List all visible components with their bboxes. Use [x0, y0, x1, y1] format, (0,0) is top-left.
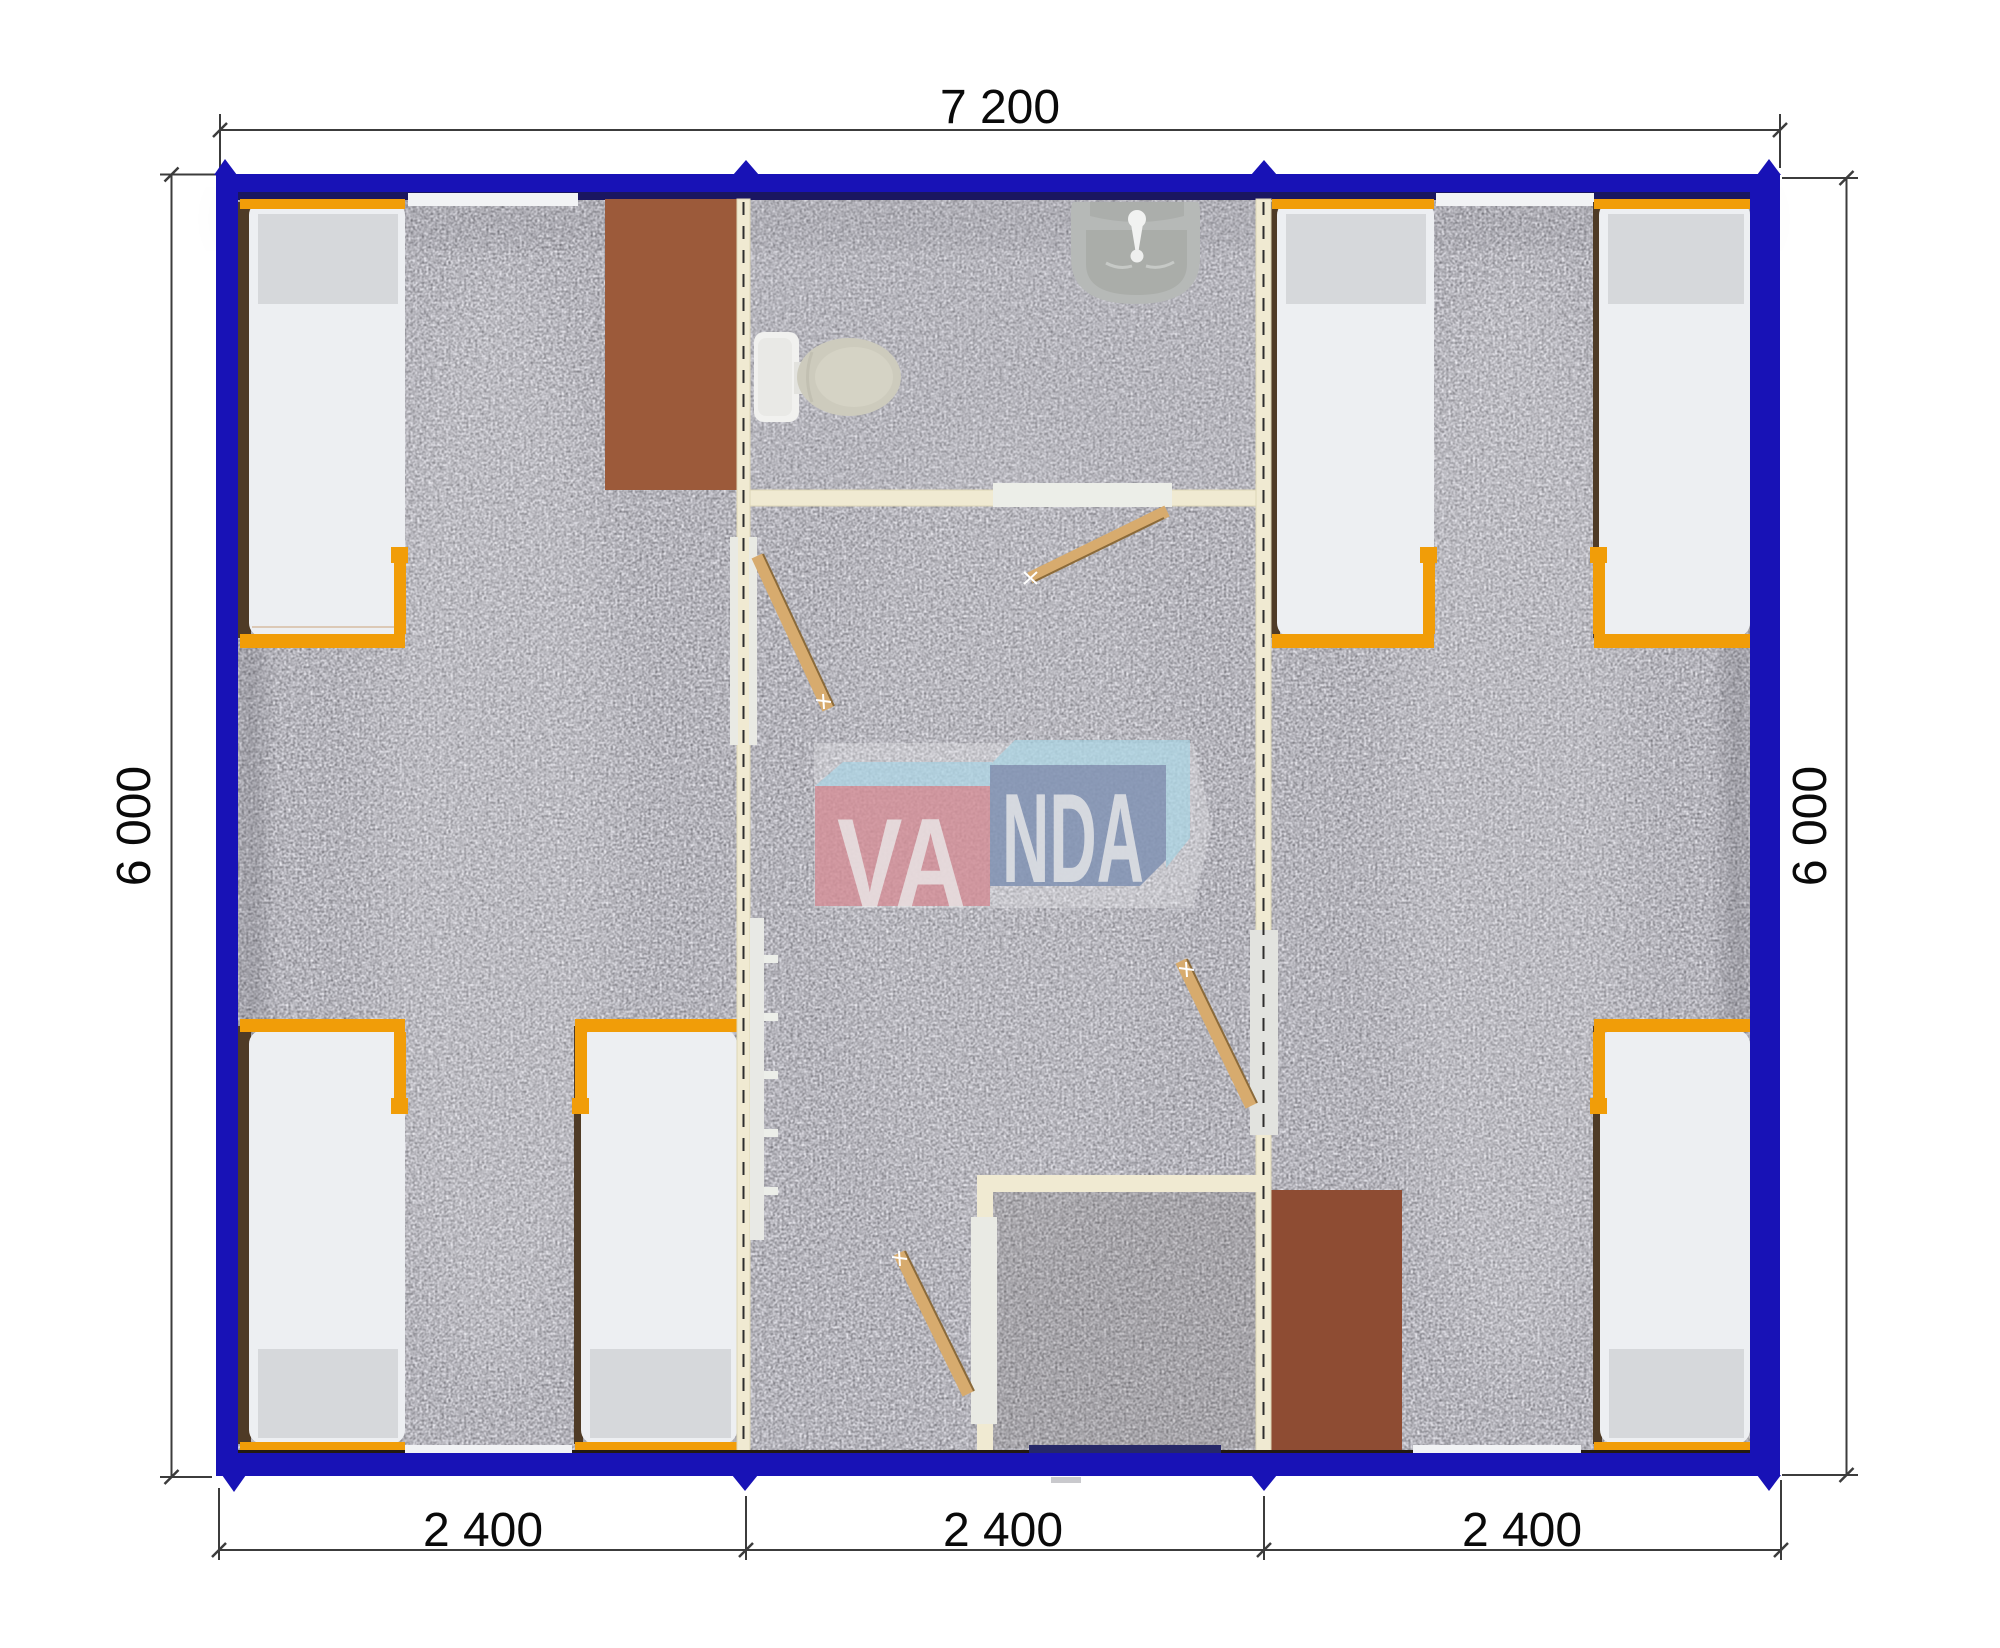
svg-text:6 000: 6 000	[108, 766, 161, 886]
svg-text:2 400: 2 400	[423, 1504, 543, 1557]
svg-text:7 200: 7 200	[940, 81, 1060, 134]
svg-text:VA: VA	[837, 792, 966, 934]
svg-text:NDA: NDA	[1002, 767, 1144, 909]
svg-text:6 000: 6 000	[1784, 766, 1837, 886]
svg-text:2 400: 2 400	[943, 1504, 1063, 1557]
svg-text:2 400: 2 400	[1462, 1504, 1582, 1557]
